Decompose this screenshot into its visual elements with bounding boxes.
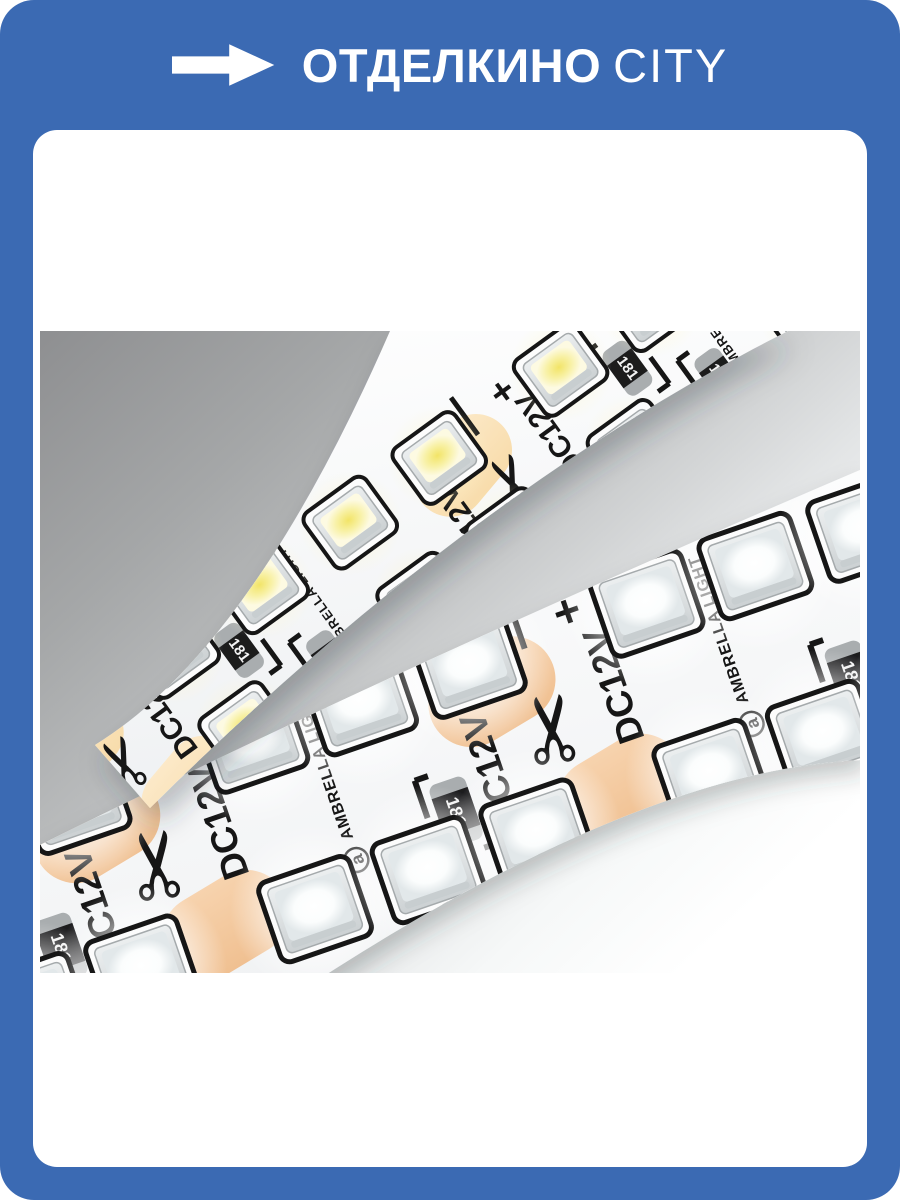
- brand-name: ОТДЕЛКИНОCITY: [302, 38, 728, 93]
- content-panel: ✂DC12VDC12V++181aAMBRELLA LIGHT✂DC12VDC1…: [33, 130, 867, 1167]
- product-photo: ✂DC12VDC12V++181aAMBRELLA LIGHT✂DC12VDC1…: [40, 331, 860, 973]
- brand-name-secondary: CITY: [613, 39, 728, 92]
- led-strips-photo: ✂DC12VDC12V++181aAMBRELLA LIGHT✂DC12VDC1…: [40, 331, 860, 973]
- header: ОТДЕЛКИНОCITY: [0, 0, 900, 130]
- brand-name-primary: ОТДЕЛКИНО: [302, 39, 601, 92]
- brand-frame: ОТДЕЛКИНОCITY ✂DC12VDC12V++181aAMBRELLA …: [0, 0, 900, 1200]
- brand-arrow-icon: [172, 42, 276, 88]
